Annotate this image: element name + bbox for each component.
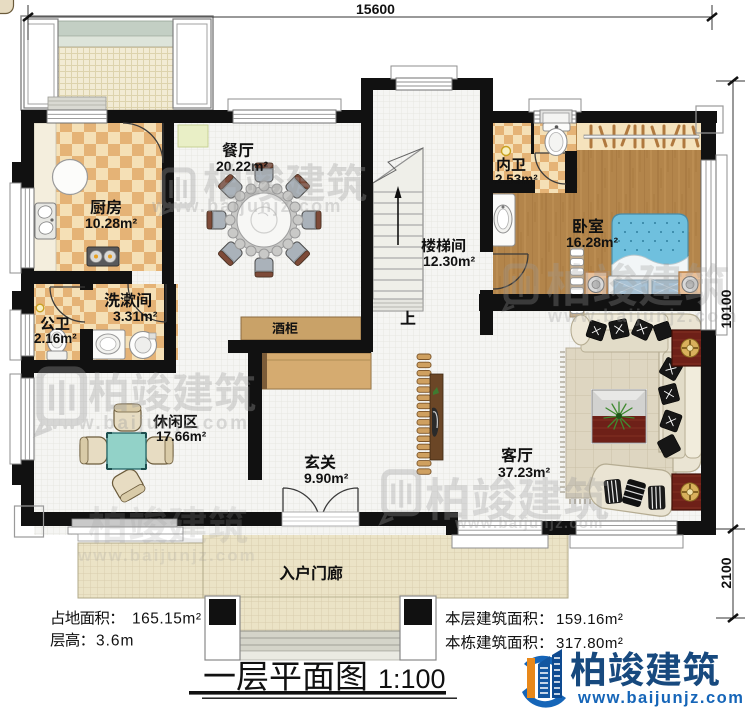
svg-text:9.90m²: 9.90m² — [304, 470, 349, 486]
svg-text:www.baijunjz.com: www.baijunjz.com — [151, 196, 343, 216]
svg-text:2100: 2100 — [718, 557, 734, 588]
svg-text:www.baijunjz.com: www.baijunjz.com — [547, 306, 739, 326]
svg-text:10100: 10100 — [718, 289, 734, 328]
svg-text:www.baijunjz.com: www.baijunjz.com — [577, 689, 744, 707]
svg-text:1:100: 1:100 — [378, 664, 446, 694]
svg-text:www.baijunjz.com: www.baijunjz.com — [454, 515, 604, 532]
svg-text:15600: 15600 — [356, 1, 395, 17]
svg-text:www.baijunjz.com: www.baijunjz.com — [77, 546, 257, 565]
svg-text:2.16m²: 2.16m² — [34, 331, 77, 346]
svg-text:3.6m: 3.6m — [96, 633, 134, 650]
svg-text:www.baijunjz.com: www.baijunjz.com — [43, 413, 250, 434]
svg-text:317.80m²: 317.80m² — [556, 635, 623, 652]
svg-text:37.23m²: 37.23m² — [498, 464, 550, 480]
svg-text:16.28m²: 16.28m² — [566, 234, 618, 250]
svg-text:159.16m²: 159.16m² — [556, 611, 623, 628]
svg-text:3.31m²: 3.31m² — [113, 308, 158, 324]
svg-text:10.28m²: 10.28m² — [85, 215, 137, 231]
svg-text:2.53m²: 2.53m² — [495, 172, 538, 187]
svg-text:12.30m²: 12.30m² — [423, 253, 475, 269]
svg-text:165.15m²: 165.15m² — [132, 611, 201, 628]
